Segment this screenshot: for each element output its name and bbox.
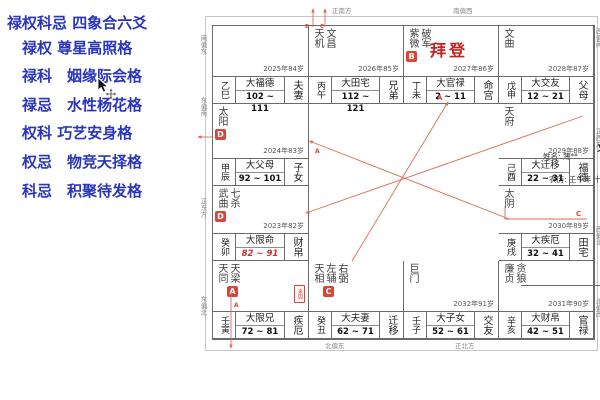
stem-branch: 乙巳	[213, 77, 236, 103]
pattern-item-6[interactable]: 科忌 积聚待发格	[22, 180, 142, 201]
stem-branch: 丙午	[309, 77, 332, 103]
pattern-item-4[interactable]: 权科 巧艺安身格	[22, 122, 132, 143]
pattern-item-1[interactable]: 禄权 尊星高照格	[22, 37, 132, 58]
palace-cell-丁未[interactable]: 紫微破军B拜登2027年86岁丁未大官禄2 ~ 11命宫	[404, 26, 499, 104]
compass-label-left-2: 东偏南	[199, 97, 206, 117]
star-2: 七杀	[228, 188, 239, 208]
star-group: 廉贞贪狼	[502, 263, 547, 283]
compass-label-right-3: 西偏北	[594, 226, 600, 246]
compass-label-top-2: 南偏西	[453, 5, 473, 15]
palace-label: 福德	[569, 159, 593, 185]
star-2: 天梁	[228, 263, 239, 283]
palace-label: 子女	[284, 159, 308, 185]
decade-palace-name: 大父母	[236, 159, 284, 173]
decade-palace-name: 大福德	[236, 77, 284, 91]
star-group: 巨门	[407, 263, 429, 283]
palace-label: 迁移	[379, 312, 403, 338]
year-age-label: 2023年82岁	[263, 221, 304, 231]
compass-label-left-1: 南偏东	[199, 35, 206, 55]
laiyin-tag: 来因	[294, 285, 305, 303]
star-group: 太阳	[216, 106, 238, 126]
compass-label-bottom-2: 正北方	[455, 340, 475, 350]
star-group: 天府	[502, 106, 524, 126]
stem-branch: 己酉	[499, 159, 522, 185]
age-range: 62 ~ 71	[332, 326, 379, 338]
palace-cell-辛亥[interactable]: 廉贞贪狼2031年90岁辛亥大财帛42 ~ 51官禄	[499, 261, 594, 339]
palace-strip: 丁未大官禄2 ~ 11命宫	[404, 76, 498, 103]
year-age-label: 2030年89岁	[548, 221, 589, 231]
star-1: 太阴	[502, 188, 513, 208]
palace-cell-癸丑[interactable]: 天相左辅右弼C癸丑大夫妻62 ~ 71迁移	[309, 261, 404, 339]
star-1: 天同	[216, 263, 227, 283]
pattern-item-2[interactable]: 禄科 姻缘际会格	[22, 65, 142, 86]
star-1: 紫微	[407, 28, 418, 48]
sihua-badge-D: D	[215, 129, 226, 140]
star-2: 破军	[419, 28, 430, 48]
star-1: 天相	[312, 263, 323, 283]
year-age-label: 2026年85岁	[358, 64, 399, 74]
pattern-item-5[interactable]: 权忌 物竞天择格	[22, 151, 142, 172]
decade-palace-name: 大疾厄	[522, 234, 569, 248]
decade-palace-name: 大财帛	[522, 312, 569, 326]
compass-label-bottom-1: 北偏东	[325, 340, 345, 350]
star-1: 廉贞	[502, 263, 513, 283]
age-range: 12 ~ 21	[522, 91, 569, 103]
stem-branch: 癸丑	[309, 312, 332, 338]
compass-label-left-3: 正东方	[199, 198, 206, 218]
palace-label: 交友	[474, 312, 498, 338]
decade-palace-name: 大限命	[236, 234, 284, 248]
ziwei-app-window: { "sidebar": { "color": "#2936bb", "titl…	[0, 0, 600, 400]
compass-label-top-1: 正南方	[332, 5, 352, 15]
year-age-label: 2031年90岁	[548, 299, 589, 309]
palace-label: 父母	[569, 77, 593, 103]
age-range: 112 ~ 121	[332, 91, 379, 115]
palace-strip: 癸丑大夫妻62 ~ 71迁移	[309, 311, 403, 338]
year-age-label: 2028年87岁	[548, 64, 589, 74]
compass-label-right-2: 正西方	[594, 128, 600, 148]
palace-strip: 癸卯大限命82 ~ 91财帛	[213, 233, 308, 260]
decade-palace-name: 大子女	[427, 312, 474, 326]
palace-cell-戊申[interactable]: 文曲2028年87岁戊申大交友12 ~ 21父母	[499, 26, 594, 104]
chart-person-name: 拜登	[430, 37, 468, 61]
palace-strip: 甲辰大父母92 ~ 101子女	[213, 158, 308, 185]
palace-cell-甲辰[interactable]: 太阳D2024年83岁甲辰大父母92 ~ 101子女	[213, 104, 309, 186]
palace-label: 财帛	[284, 234, 308, 260]
palace-strip: 己酉大迁移22 ~ 31福德	[499, 158, 593, 185]
star-group: 太阴	[502, 188, 524, 208]
star-group: 武曲七杀	[216, 188, 261, 208]
star-2: 左辅	[324, 263, 335, 283]
palace-cell-己酉[interactable]: 天府2029年88岁己酉大迁移22 ~ 31福德	[499, 104, 594, 186]
decade-palace-name: 大限兄	[236, 312, 284, 326]
age-range: 52 ~ 61	[427, 326, 474, 338]
star-2: 文昌	[324, 28, 335, 48]
palace-strip: 戊申大交友12 ~ 21父母	[499, 76, 593, 103]
star-1: 天机	[312, 28, 323, 48]
stem-branch: 壬寅	[213, 312, 236, 338]
stem-branch: 丁未	[404, 77, 427, 103]
palace-strip: 乙巳大福德102 ~ 111夫妻	[213, 76, 308, 103]
decade-palace-name: 大迁移	[522, 159, 569, 173]
age-range: 2 ~ 11	[427, 91, 474, 103]
year-age-label: 2032年91岁	[453, 299, 494, 309]
palace-label: 夫妻	[284, 77, 308, 103]
compass-label-right-1: 西偏南	[594, 28, 600, 48]
pattern-list-title[interactable]: 禄权科忌 四象合六爻	[7, 12, 147, 33]
age-range: 92 ~ 101	[236, 173, 284, 185]
palace-strip: 丙午大田宅112 ~ 121兄弟	[309, 76, 403, 103]
palace-strip: 壬子大子女52 ~ 61交友	[404, 311, 498, 338]
decade-palace-name: 大田宅	[332, 77, 379, 91]
palace-label: 疾厄	[284, 312, 308, 338]
decade-palace-name: 大夫妻	[332, 312, 379, 326]
star-group: 天相左辅右弼	[312, 263, 380, 283]
palace-strip: 壬寅大限兄72 ~ 81疾厄	[213, 311, 308, 338]
sihua-badge-A: A	[227, 286, 238, 297]
year-age-label: 2029年88岁	[548, 146, 589, 156]
star-group: 文曲	[502, 28, 524, 48]
stem-branch: 庚戌	[499, 234, 522, 260]
star-1: 武曲	[216, 188, 227, 208]
palace-label: 命宫	[474, 77, 498, 103]
stem-branch: 戊申	[499, 77, 522, 103]
age-range: 82 ~ 91	[236, 248, 284, 260]
palace-cell-壬子[interactable]: 巨门2032年91岁壬子大子女52 ~ 61交友	[404, 261, 499, 339]
ziwei-chart-grid: 文墨天机 pro 2.0.3 9EJrQ 姓名: 薄** 阳男 水二局 农历: …	[212, 25, 595, 340]
star-1: 巨门	[407, 263, 418, 283]
palace-label: 兄弟	[379, 77, 403, 103]
palace-label: 官禄	[569, 312, 593, 338]
pattern-item-3[interactable]: 禄忌 水性杨花格	[22, 94, 142, 115]
age-range: 32 ~ 41	[522, 248, 569, 260]
palace-cell-乙巳[interactable]: 2025年84岁乙巳大福德102 ~ 111夫妻	[213, 26, 309, 104]
palace-strip: 庚戌大疾厄32 ~ 41田宅	[499, 233, 593, 260]
stem-branch: 壬子	[404, 312, 427, 338]
star-group: 天同天梁	[216, 263, 261, 283]
compass-label-right-4: 北偏西	[594, 298, 600, 318]
star-1: 太阳	[216, 106, 227, 126]
palace-strip: 辛亥大财帛42 ~ 51官禄	[499, 311, 593, 338]
year-age-label: 2027年86岁	[453, 64, 494, 74]
star-3: 右弼	[336, 263, 347, 283]
year-age-label: 2025年84岁	[263, 64, 304, 74]
star-2: 贪狼	[514, 263, 525, 283]
age-range: 72 ~ 81	[236, 326, 284, 338]
palace-cell-癸卯[interactable]: 武曲七杀D2023年82岁癸卯大限命82 ~ 91财帛	[213, 186, 309, 261]
palace-cell-丙午[interactable]: 天机文昌2026年85岁丙午大田宅112 ~ 121兄弟	[309, 26, 404, 104]
stem-branch: 辛亥	[499, 312, 522, 338]
sihua-badge-C: C	[323, 286, 334, 297]
star-group: 天机文昌	[312, 28, 357, 48]
star-1: 天府	[502, 106, 513, 126]
stem-branch: 癸卯	[213, 234, 236, 260]
star-1: 文曲	[502, 28, 513, 48]
decade-palace-name: 大官禄	[427, 77, 474, 91]
stem-branch: 甲辰	[213, 159, 236, 185]
sihua-badge-D: D	[215, 211, 226, 222]
year-age-label: 2024年83岁	[263, 146, 304, 156]
palace-cell-庚戌[interactable]: 太阴2030年89岁庚戌大疾厄32 ~ 41田宅	[499, 186, 594, 261]
sihua-badge-B: B	[406, 51, 417, 62]
palace-label: 田宅	[569, 234, 593, 260]
decade-palace-name: 大交友	[522, 77, 569, 91]
age-range: 22 ~ 31	[522, 173, 569, 185]
mouse-cursor	[97, 78, 117, 100]
palace-cell-壬寅[interactable]: 天同天梁A来因壬寅大限兄72 ~ 81疾厄	[213, 261, 309, 339]
compass-label-left-4: 东偏北	[199, 296, 206, 316]
age-range: 42 ~ 51	[522, 326, 569, 338]
